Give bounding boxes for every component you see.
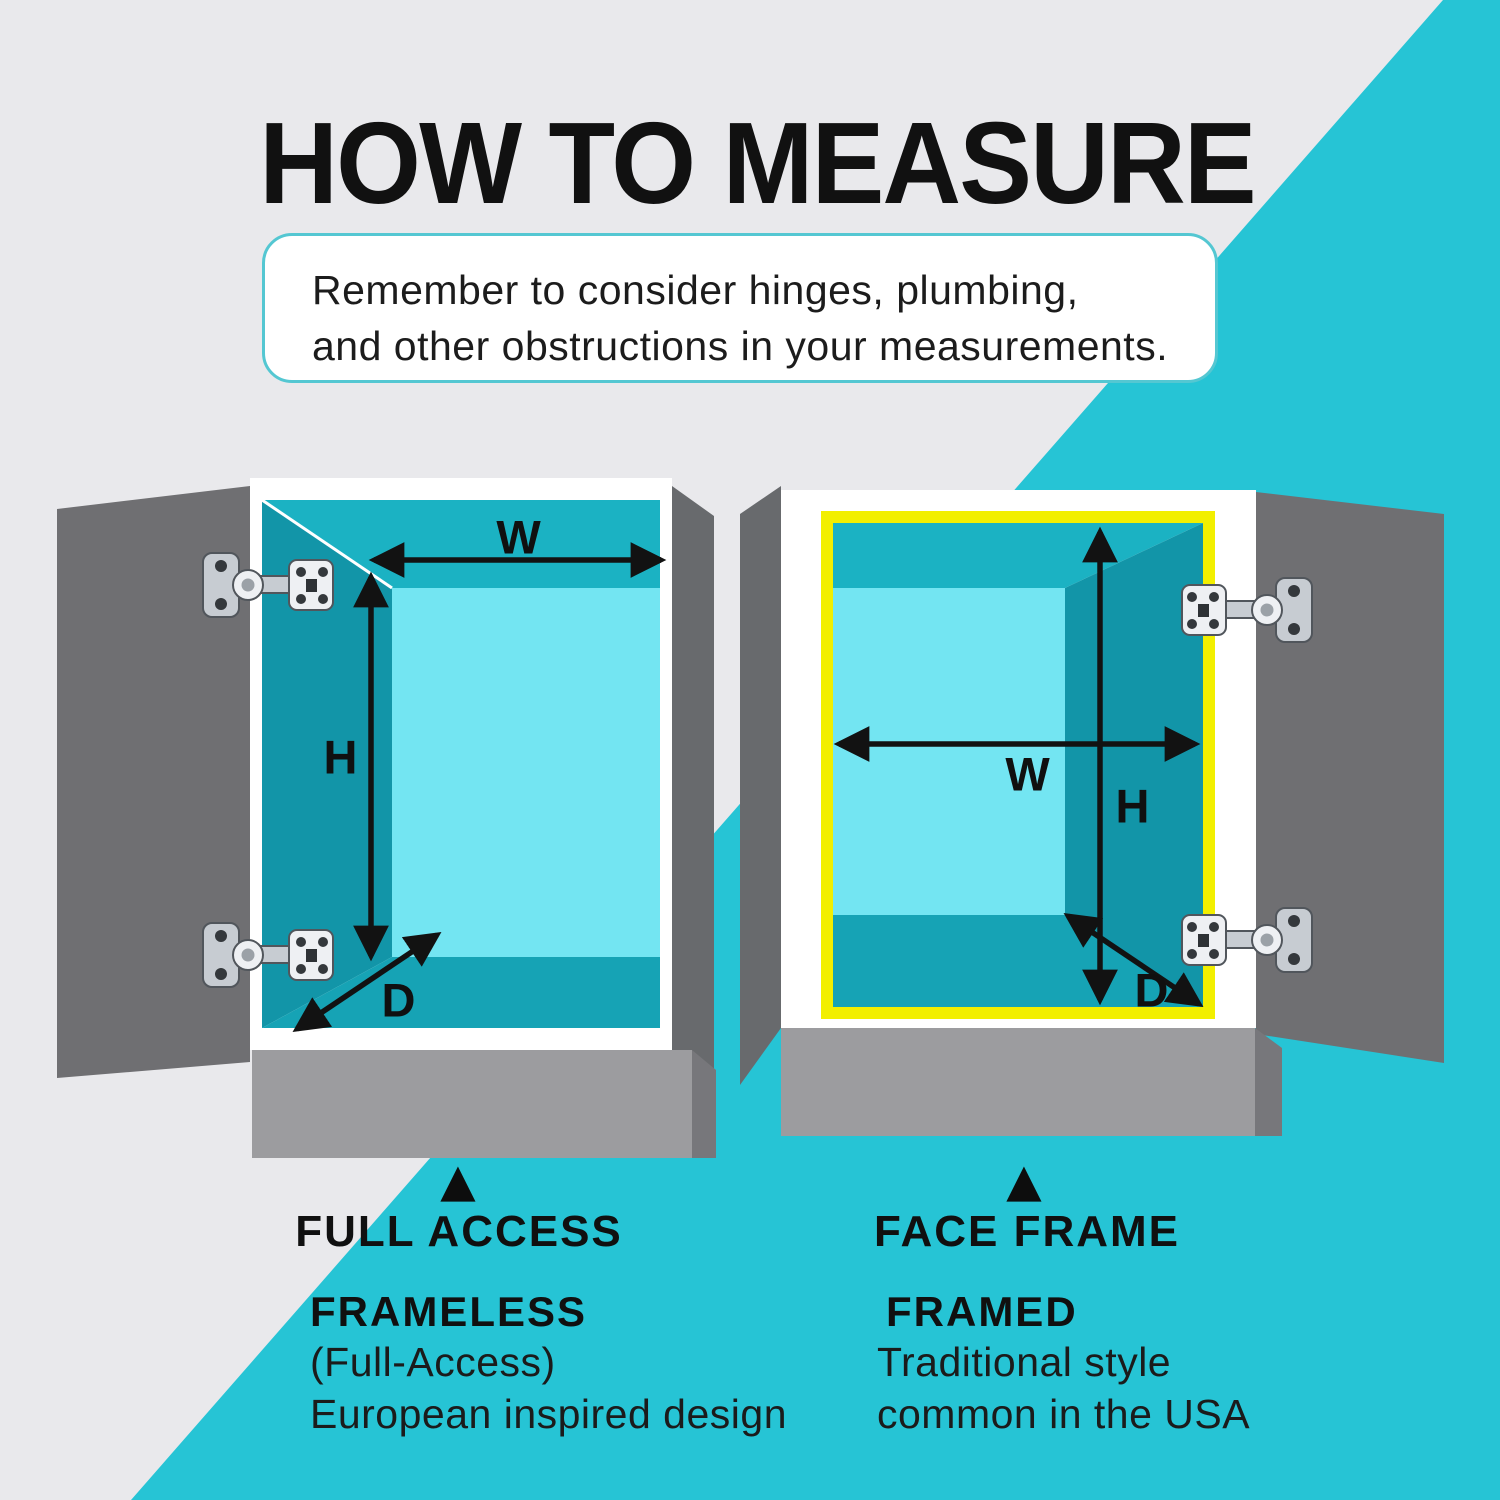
height-label-frameless: H	[324, 730, 359, 785]
page-title: HOW TO MEASURE	[259, 96, 1254, 230]
height-label-framed: H	[1116, 779, 1151, 834]
framed-cabinet	[740, 486, 1444, 1136]
heading-face-frame: FACE FRAME	[874, 1207, 1180, 1257]
up-triangle-icon-right: ▲	[1006, 1157, 1041, 1203]
note-box: Remember to consider hinges, plumbing, a…	[262, 233, 1218, 383]
width-label-framed: W	[1005, 747, 1050, 802]
width-label-frameless: W	[496, 510, 541, 565]
type-frameless: FRAMELESS	[310, 1288, 587, 1336]
depth-label-framed: D	[1135, 963, 1170, 1018]
frameless-cabinet	[57, 478, 716, 1158]
framed-detail-1: Traditional style	[877, 1339, 1171, 1386]
note-text-line2: and other obstructions in your measureme…	[312, 318, 1215, 374]
cabinet-base	[252, 1050, 692, 1158]
heading-full-access: FULL ACCESS	[295, 1207, 623, 1257]
up-triangle-icon-left: ▲	[440, 1157, 475, 1203]
cabinet-base	[781, 1028, 1255, 1136]
side-panel-left	[740, 486, 781, 1085]
note-text-line1: Remember to consider hinges, plumbing,	[312, 262, 1215, 318]
type-framed: FRAMED	[886, 1288, 1078, 1336]
frameless-detail-1: (Full-Access)	[310, 1339, 556, 1386]
how-to-measure-infographic: HOW TO MEASURE Remember to consider hing…	[0, 0, 1500, 1500]
side-panel-right	[672, 486, 714, 1105]
depth-label-frameless: D	[382, 973, 417, 1028]
frameless-detail-2: European inspired design	[310, 1391, 787, 1438]
interior-back-wall	[392, 588, 660, 957]
framed-detail-2: common in the USA	[877, 1391, 1250, 1438]
